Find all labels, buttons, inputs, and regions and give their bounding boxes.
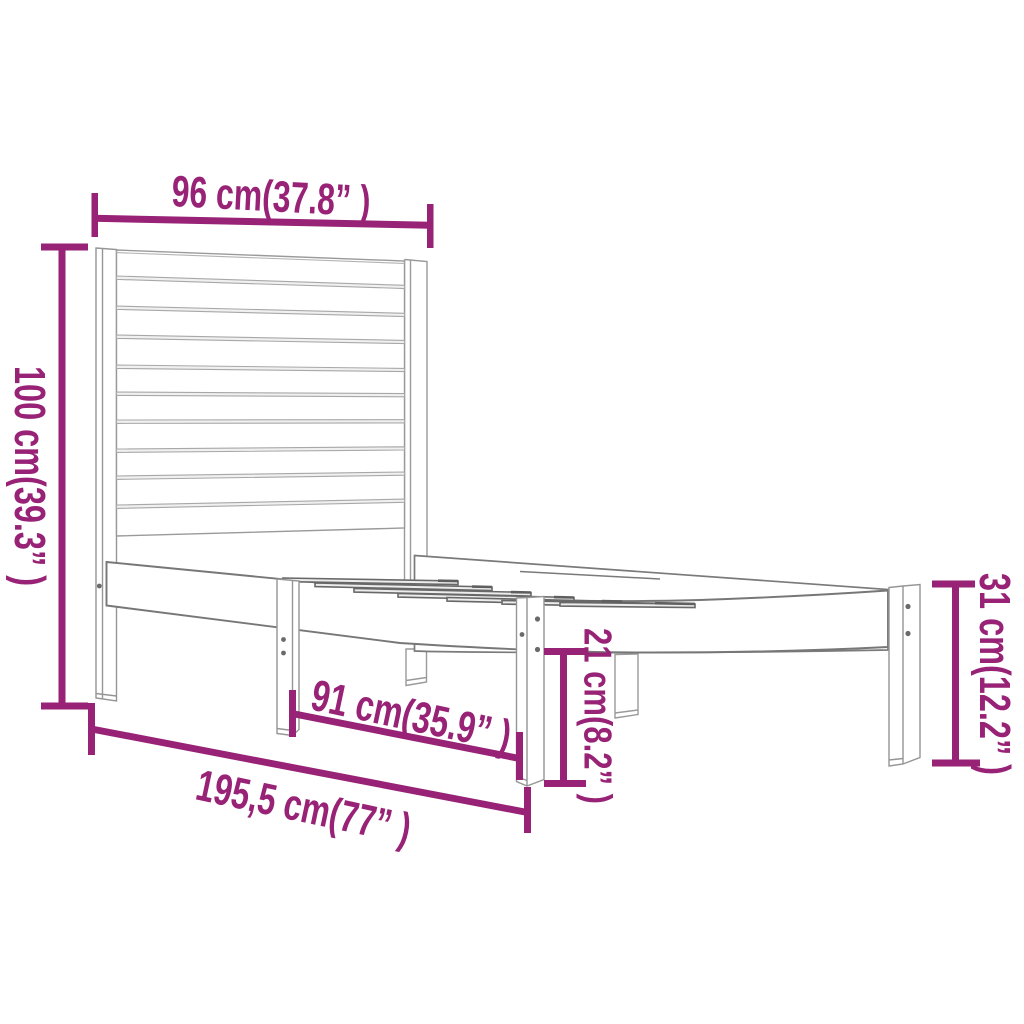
svg-text:21 cm(8.2” ): 21 cm(8.2” )	[576, 628, 619, 804]
svg-text:96 cm(37.8” ): 96 cm(37.8” )	[170, 167, 371, 226]
svg-text:31 cm(12.2” ): 31 cm(12.2” )	[970, 573, 1019, 775]
svg-text:100 cm(39.3” ): 100 cm(39.3” )	[5, 366, 54, 586]
